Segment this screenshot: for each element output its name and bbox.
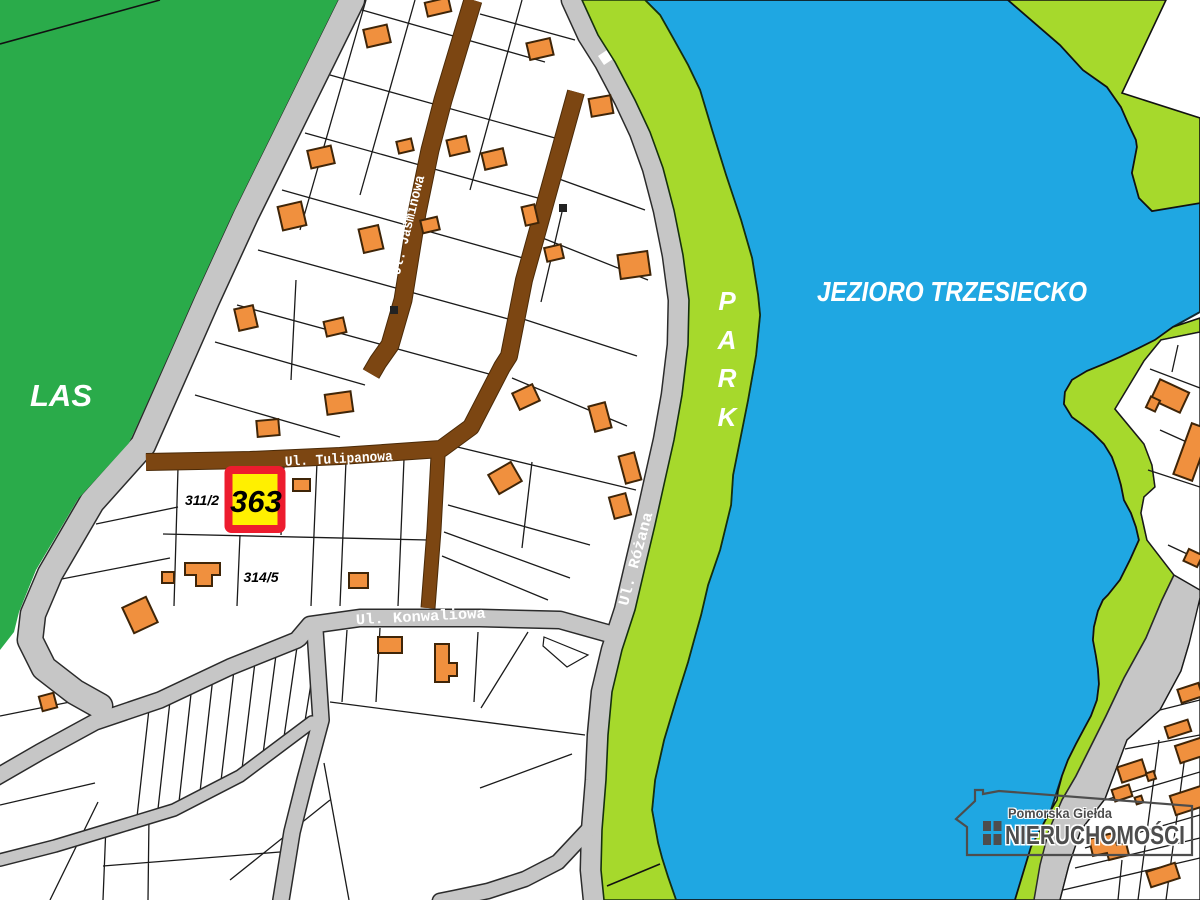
svg-text:A: A — [717, 325, 737, 355]
svg-text:314/5: 314/5 — [243, 569, 278, 585]
svg-text:R: R — [718, 363, 737, 393]
svg-text:363: 363 — [230, 484, 282, 519]
svg-text:NIERUCHOMOŚCI: NIERUCHOMOŚCI — [1005, 820, 1185, 850]
svg-text:P: P — [718, 286, 736, 316]
svg-text:JEZIORO TRZESIECKO: JEZIORO TRZESIECKO — [817, 276, 1087, 307]
svg-text:K: K — [718, 402, 739, 432]
svg-text:Pomorska Giełda: Pomorska Giełda — [1008, 806, 1112, 821]
svg-text:311/2: 311/2 — [185, 492, 219, 508]
svg-text:LAS: LAS — [30, 378, 92, 413]
